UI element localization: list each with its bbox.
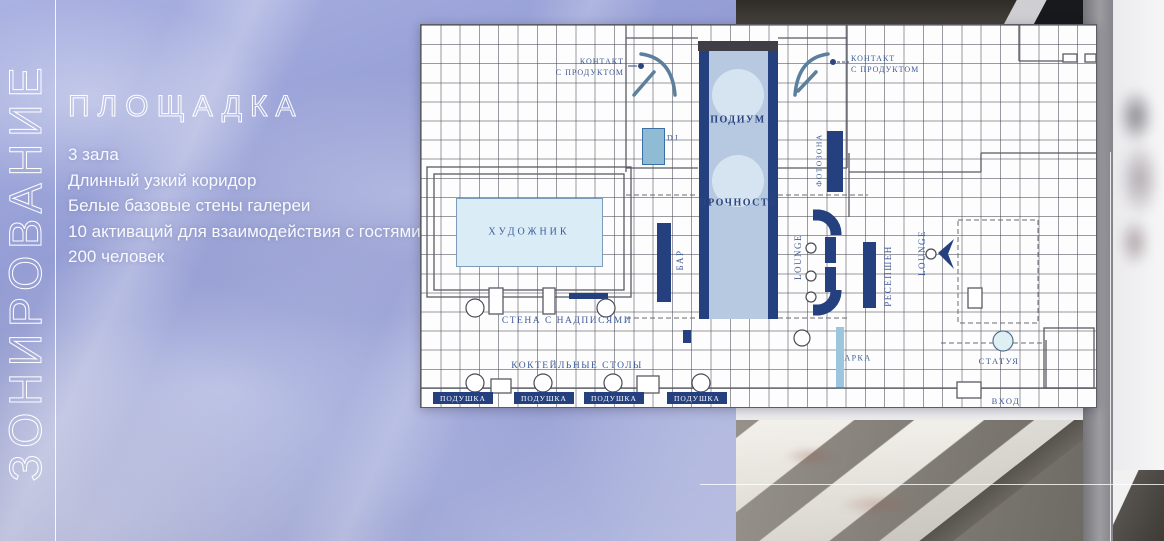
- presentation-slide: ЗОНИРОВАНИЕ ПЛОЩАДКА 3 зала Длинный узки…: [0, 0, 1164, 541]
- contact-label-right: КОНТАКТ С ПРОДУКТОМ: [851, 53, 919, 75]
- arch-label: АРКА: [844, 354, 871, 363]
- cocktail-tables-label: КОКТЕЙЛЬНЫЕ СТОЛЫ: [511, 361, 643, 371]
- pillow-seat: ПОДУШКА: [514, 392, 574, 404]
- bullet-item: Белые базовые стены галереи: [68, 193, 421, 219]
- door-swing-arcs: [634, 54, 828, 95]
- plan-linework: [421, 25, 1096, 407]
- strength-label: ПРОЧНОСТЬ: [699, 198, 777, 209]
- bullet-item: Длинный узкий коридор: [68, 168, 421, 194]
- lounge-label-2: LOUNGE: [917, 230, 927, 276]
- page-title: ПЛОЩАДКА: [68, 90, 304, 124]
- statue-circle: [993, 331, 1013, 351]
- podium-label: ПОДИУМ: [710, 115, 766, 126]
- bullet-list: 3 зала Длинный узкий коридор Белые базов…: [68, 142, 421, 270]
- vertical-title: ЗОНИРОВАНИЕ: [0, 60, 52, 481]
- pillow-seat: ПОДУШКА: [584, 392, 644, 404]
- bullet-item: 3 зала: [68, 142, 421, 168]
- artist-label: ХУДОЖНИК: [488, 227, 569, 238]
- inscription-wall-label: СТЕНА С НАДПИСЯМИ: [502, 316, 632, 326]
- floor-plan: КОНТАКТ С ПРОДУКТОМ КОНТАКТ С ПРОДУКТОМ …: [420, 24, 1097, 408]
- sculpture-shadow: [1108, 70, 1164, 280]
- furniture: [569, 131, 954, 343]
- entrance-label: ВХОД: [992, 396, 1021, 406]
- design-horizontal-line: [700, 484, 1164, 485]
- dj-label: DJ: [667, 134, 679, 143]
- pillow-seat: ПОДУШКА: [433, 392, 493, 404]
- photo-zone-label: ФОТОЗОНА: [815, 133, 824, 186]
- reception-label: РЕСЕПШЕН: [883, 245, 893, 307]
- pillow-seat: ПОДУШКА: [667, 392, 727, 404]
- photo-corner-shadow: [1113, 470, 1164, 541]
- bullet-item: 10 активаций для взаимодействия с гостям…: [68, 219, 421, 245]
- bullet-item: 200 человек: [68, 244, 421, 270]
- design-vertical-line: [1110, 152, 1111, 541]
- contact-label-left: КОНТАКТ С ПРОДУКТОМ: [534, 56, 624, 78]
- bar-label: БАР: [675, 249, 685, 270]
- vertical-rule: [55, 0, 56, 541]
- lounge-label-1: LOUNGE: [793, 234, 803, 280]
- photo-floor: [736, 420, 1085, 541]
- statue-label: СТАТУЯ: [979, 356, 1020, 366]
